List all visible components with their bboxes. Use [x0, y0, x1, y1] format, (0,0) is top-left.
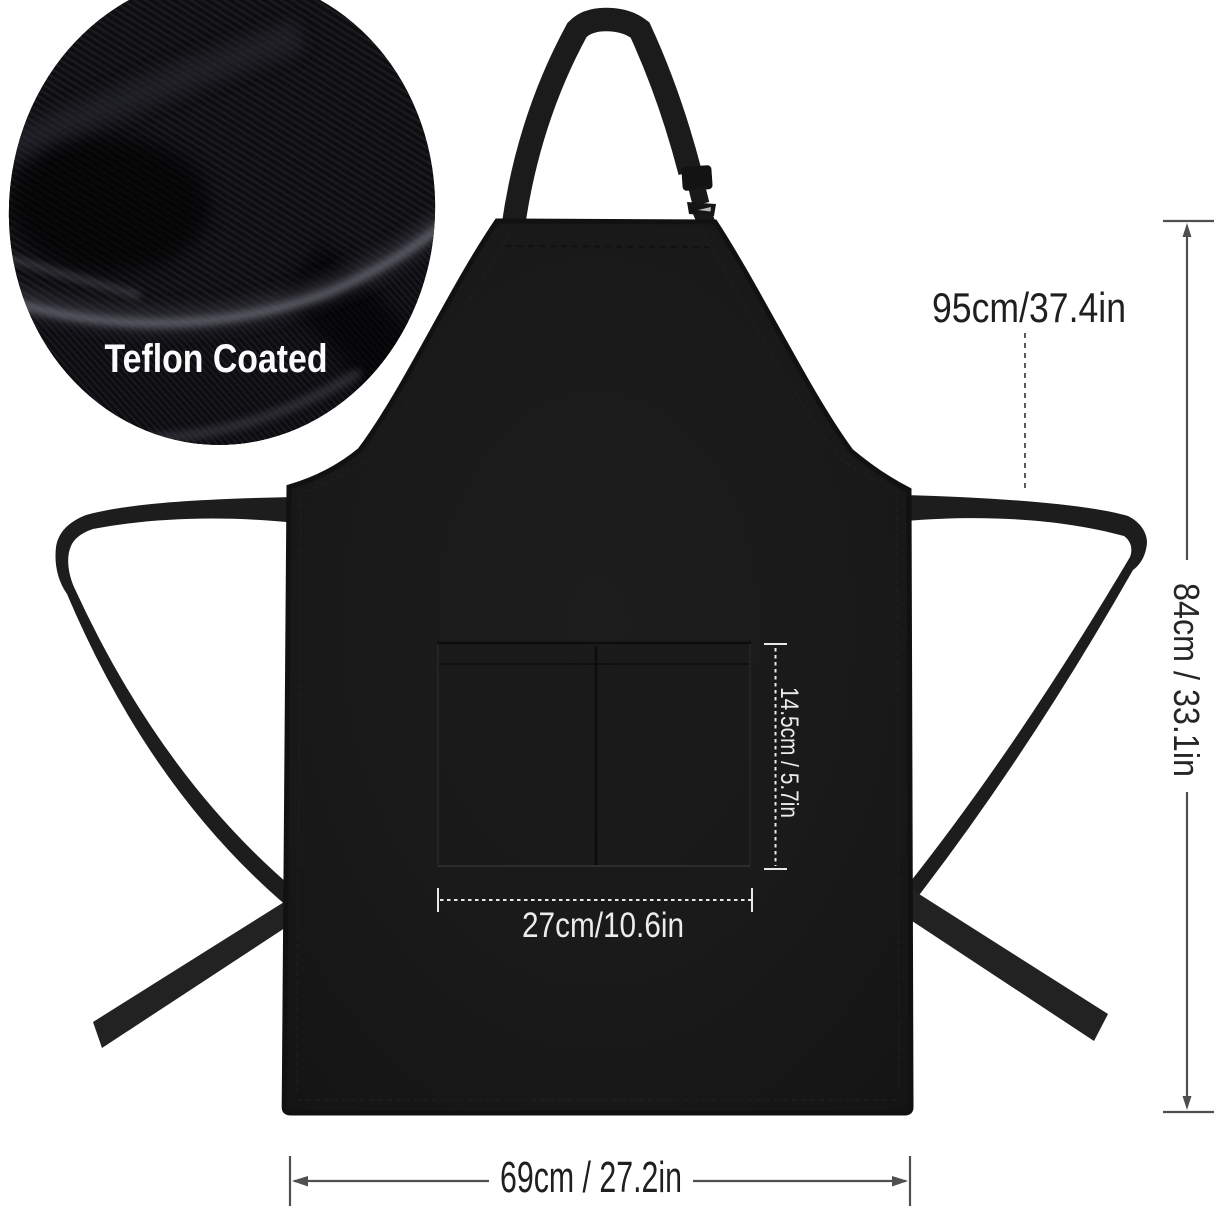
- svg-text:Teflon Coated: Teflon Coated: [105, 337, 328, 381]
- svg-text:95cm/37.4in: 95cm/37.4in: [932, 284, 1126, 331]
- svg-text:27cm/10.6in: 27cm/10.6in: [522, 906, 684, 945]
- svg-text:69cm / 27.2in: 69cm / 27.2in: [500, 1153, 682, 1202]
- svg-text:84cm / 33.1in: 84cm / 33.1in: [1166, 583, 1207, 777]
- svg-text:14.5cm / 5.7in: 14.5cm / 5.7in: [775, 687, 803, 818]
